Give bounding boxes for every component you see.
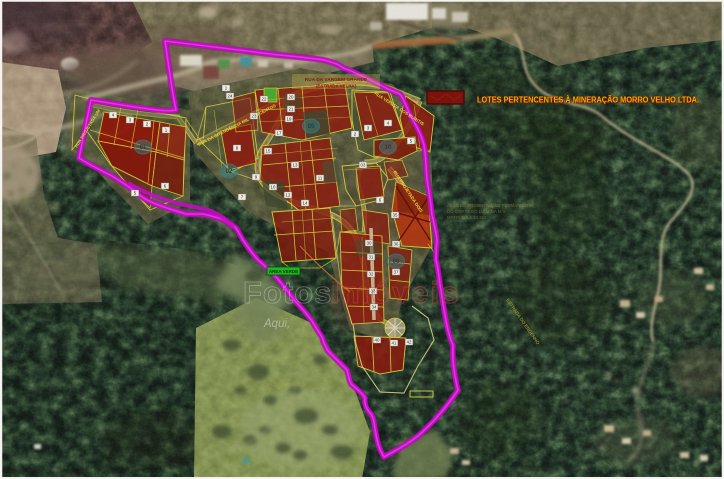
svg-text:MATRÍCULA 14.382: MATRÍCULA 14.382 [447,215,487,220]
svg-text:23: 23 [252,114,257,119]
svg-text:19: 19 [287,117,292,122]
svg-text:22: 22 [262,97,267,102]
svg-text:10: 10 [271,185,276,190]
svg-text:30: 30 [367,241,372,246]
svg-text:DO CÓRREGO DA MINA M.V.: DO CÓRREGO DA MINA M.V. [447,209,506,214]
svg-text:LOTES PERTENCENTES À MINERAÇÃO: LOTES PERTENCENTES À MINERAÇÃO MORRO VEL… [477,96,699,105]
svg-text:31: 31 [369,255,374,260]
svg-text:20: 20 [289,95,294,100]
svg-text:Fotos: Fotos [243,275,332,310]
svg-text:13: 13 [293,163,298,168]
svg-text:ÁREA DE PRESERVAÇÃO PERMANENTE: ÁREA DE PRESERVAÇÃO PERMANENTE [447,203,532,208]
svg-text:36: 36 [394,242,399,247]
svg-text:Imóveis: Imóveis [331,275,460,310]
svg-text:10: 10 [385,145,392,151]
svg-text:Aqui,: Aqui, [263,318,290,330]
svg-text:06: 06 [393,259,400,265]
svg-text:40: 40 [375,338,380,343]
svg-text:21: 21 [289,107,294,112]
svg-text:05: 05 [308,124,315,130]
svg-text:24: 24 [228,94,233,99]
svg-text:12: 12 [286,193,291,198]
svg-text:17: 17 [277,131,282,136]
svg-text:03: 03 [361,163,366,168]
svg-text:15: 15 [266,149,271,154]
svg-text:37: 37 [394,270,399,275]
svg-text:14: 14 [303,201,308,206]
svg-text:35: 35 [393,213,398,218]
svg-text:(ESTRADA VELHA): (ESTRADA VELHA) [316,84,357,89]
svg-text:02: 02 [226,169,233,175]
svg-text:ÁREA VERDE: ÁREA VERDE [269,268,298,274]
svg-text:RUA DA VARGEM GRANDE: RUA DA VARGEM GRANDE [305,77,368,83]
svg-text:41: 41 [392,341,397,346]
svg-text:01: 01 [140,145,147,151]
svg-text:42: 42 [407,340,412,345]
svg-text:11: 11 [318,176,323,181]
svg-text:FAZENDA VARGEM GRANDE: FAZENDA VARGEM GRANDE [267,382,327,387]
